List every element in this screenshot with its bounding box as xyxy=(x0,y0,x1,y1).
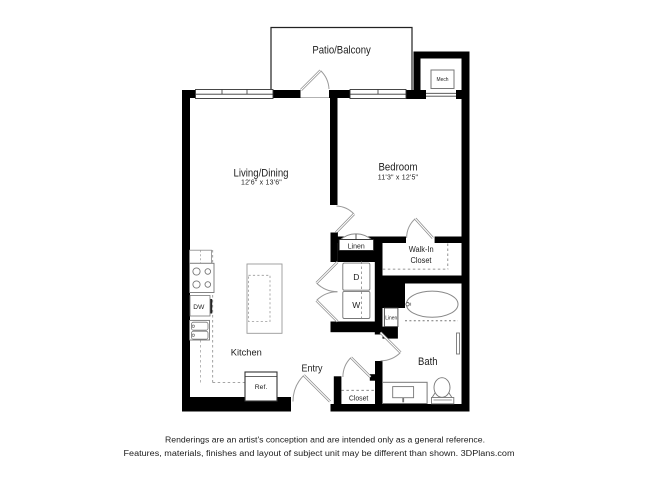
svg-text:Closet: Closet xyxy=(349,395,369,402)
svg-text:Patio/Balcony: Patio/Balcony xyxy=(312,45,371,57)
svg-text:Renderings are an artist's con: Renderings are an artist's conception an… xyxy=(165,436,485,445)
svg-text:Ref.: Ref. xyxy=(255,384,268,391)
svg-text:11'3" x 12'5": 11'3" x 12'5" xyxy=(378,175,419,182)
svg-text:Linen: Linen xyxy=(385,315,397,321)
svg-text:DW: DW xyxy=(193,305,204,311)
svg-text:Bedroom: Bedroom xyxy=(379,162,418,174)
svg-text:Walk-In: Walk-In xyxy=(409,245,434,254)
svg-text:12'6" x 13'6": 12'6" x 13'6" xyxy=(241,180,282,187)
svg-text:Features, materials, finishes: Features, materials, finishes and layout… xyxy=(124,449,515,458)
svg-text:Bath: Bath xyxy=(418,356,438,368)
svg-text:Living/Dining: Living/Dining xyxy=(234,168,289,180)
svg-text:D: D xyxy=(353,272,359,282)
svg-text:Mech: Mech xyxy=(437,77,449,83)
svg-text:W: W xyxy=(352,300,360,310)
svg-text:Closet: Closet xyxy=(411,256,433,265)
svg-text:Linen: Linen xyxy=(348,243,365,250)
svg-text:Entry: Entry xyxy=(302,363,324,375)
svg-text:Kitchen: Kitchen xyxy=(231,347,262,357)
